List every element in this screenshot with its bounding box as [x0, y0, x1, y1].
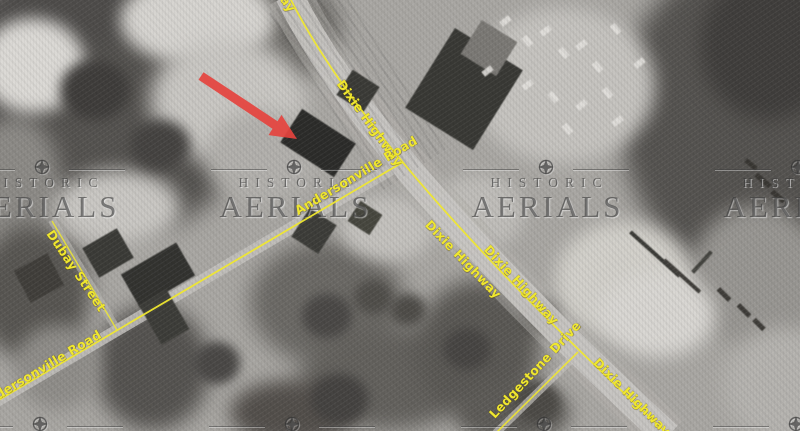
- annotation-arrow-layer: [0, 0, 800, 431]
- red-arrow-annotation: [199, 72, 298, 139]
- aerial-map-canvas[interactable]: HISTORIC AERIALS HISTORIC AERIALS HISTOR…: [0, 0, 800, 431]
